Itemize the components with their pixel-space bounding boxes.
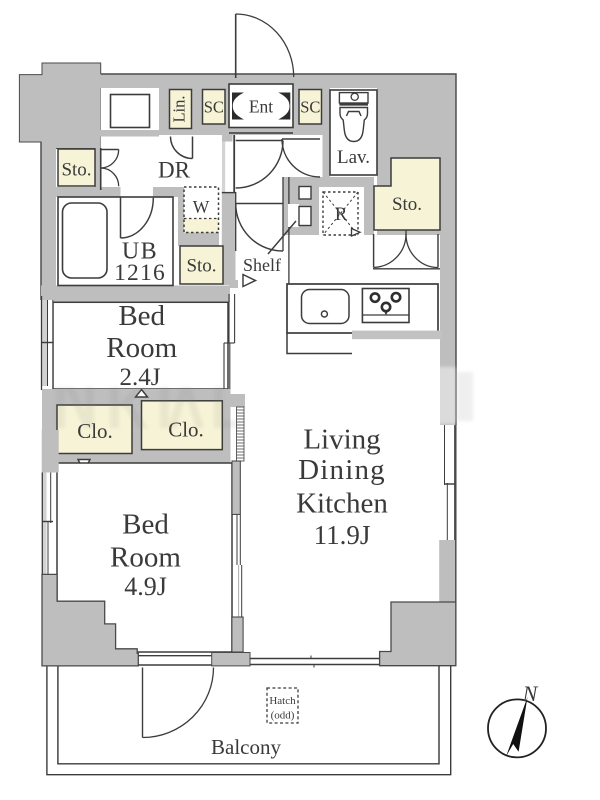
svg-text:Bed: Bed <box>122 509 169 541</box>
svg-text:(odd): (odd) <box>271 710 295 722</box>
svg-text:Room: Room <box>106 332 177 364</box>
svg-text:DR: DR <box>158 158 191 183</box>
svg-text:N: N <box>522 681 539 706</box>
svg-text:2.4J: 2.4J <box>120 364 161 391</box>
svg-text:Lin.: Lin. <box>170 95 189 122</box>
svg-text:Living: Living <box>303 424 380 456</box>
svg-text:1216: 1216 <box>114 260 166 286</box>
svg-text:Lav.: Lav. <box>337 147 370 168</box>
svg-text:Balcony: Balcony <box>211 735 281 759</box>
svg-text:Dining: Dining <box>298 454 386 486</box>
svg-text:R: R <box>335 205 348 225</box>
svg-text:Bed: Bed <box>118 300 165 332</box>
svg-text:Sto.: Sto. <box>392 194 422 215</box>
svg-text:Shelf: Shelf <box>243 255 281 275</box>
svg-text:11.9J: 11.9J <box>314 520 371 550</box>
svg-text:SC: SC <box>300 98 320 117</box>
svg-text:Kitchen: Kitchen <box>296 488 388 520</box>
svg-text:Room: Room <box>110 542 181 574</box>
svg-text:SC: SC <box>204 98 224 117</box>
svg-text:W: W <box>193 197 210 217</box>
svg-text:Sto.: Sto. <box>61 160 91 181</box>
svg-text:Ent: Ent <box>249 97 273 117</box>
svg-text:4.9J: 4.9J <box>124 572 167 601</box>
svg-text:Hatch: Hatch <box>269 695 296 707</box>
svg-text:Sto.: Sto. <box>186 256 216 277</box>
